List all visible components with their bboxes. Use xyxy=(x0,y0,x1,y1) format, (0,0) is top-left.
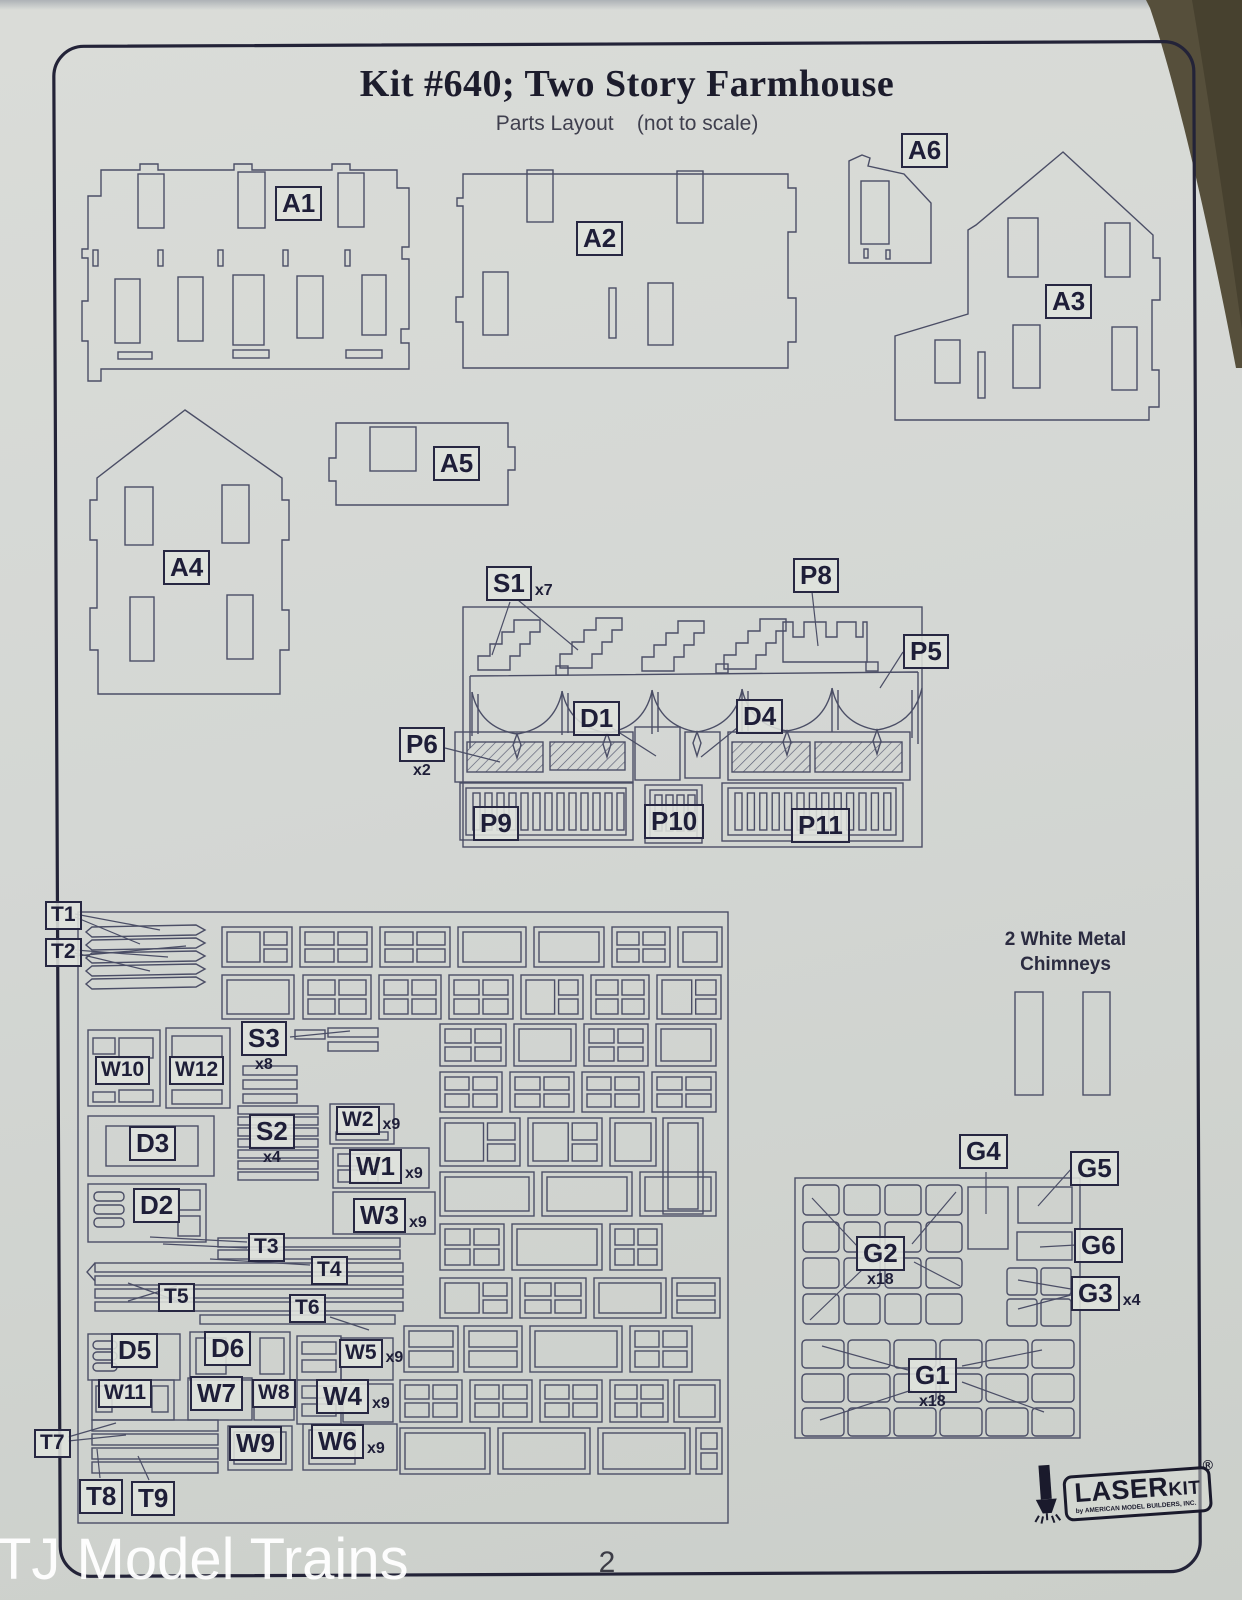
part-label-text: W10 xyxy=(95,1056,150,1085)
part-label-text: P6 xyxy=(399,727,445,762)
part-label-t1: T1 xyxy=(45,901,82,930)
laserkit-logo-box: LASERKIT by AMERICAN MODEL BUILDERS, INC… xyxy=(1062,1466,1213,1522)
part-quantity: x2 xyxy=(413,762,431,781)
part-label-text: W12 xyxy=(169,1056,224,1085)
part-label-text: G3 xyxy=(1071,1276,1120,1311)
part-label-text: W1 xyxy=(349,1149,402,1184)
part-quantity: x18 xyxy=(919,1393,946,1412)
piece-a1 xyxy=(82,164,409,381)
part-label-text: G2 xyxy=(856,1236,905,1271)
scanned-instruction-page: Kit #640; Two Story Farmhouse Parts Layo… xyxy=(0,0,1242,1600)
part-label-s2: S2x4 xyxy=(249,1114,295,1168)
part-label-g2: G2x18 xyxy=(856,1236,905,1290)
watermark: TJ Model Trains xyxy=(0,1526,409,1593)
part-label-text: W5 xyxy=(339,1339,383,1368)
part-label-text: W8 xyxy=(252,1379,296,1408)
part-label-t2: T2 xyxy=(45,938,82,967)
part-label-text: A6 xyxy=(901,133,948,168)
part-label-text: T8 xyxy=(79,1479,123,1514)
part-quantity: x9 xyxy=(405,1165,423,1184)
part-label-a6: A6 xyxy=(901,133,948,168)
part-label-text: W4 xyxy=(316,1379,369,1414)
part-label-w10: W10 xyxy=(95,1056,150,1085)
part-label-text: T3 xyxy=(248,1233,285,1262)
part-label-text: G6 xyxy=(1074,1228,1123,1263)
part-label-w2: W2x9 xyxy=(336,1106,400,1135)
part-label-a1: A1 xyxy=(275,186,322,221)
page-title: Kit #640; Two Story Farmhouse xyxy=(57,62,1197,106)
part-label-text: T1 xyxy=(45,901,82,930)
part-label-a3: A3 xyxy=(1045,284,1092,319)
part-label-text: P11 xyxy=(791,808,850,843)
part-label-w1: W1x9 xyxy=(349,1149,423,1184)
part-label-p11: P11 xyxy=(791,808,850,843)
part-label-text: S3 xyxy=(241,1021,287,1056)
part-label-text: P8 xyxy=(793,558,839,593)
part-label-text: T4 xyxy=(311,1256,348,1285)
piece-g5 xyxy=(1018,1187,1072,1223)
parts-outlines xyxy=(68,152,1160,1523)
part-label-s3: S3x8 xyxy=(241,1021,287,1075)
part-label-text: D4 xyxy=(736,699,783,734)
registered-mark: ® xyxy=(1202,1456,1213,1473)
part-label-text: D5 xyxy=(111,1333,158,1368)
part-label-text: S1 xyxy=(486,566,532,601)
part-label-a4: A4 xyxy=(163,550,210,585)
part-label-text: W6 xyxy=(311,1424,364,1459)
chimneys-note: 2 White Metal Chimneys xyxy=(978,928,1153,977)
part-label-g4: G4 xyxy=(959,1134,1008,1169)
part-label-text: G1 xyxy=(908,1358,957,1393)
part-label-text: T7 xyxy=(34,1429,71,1458)
part-label-w7: W7 xyxy=(190,1376,243,1411)
part-label-p6: P6x2 xyxy=(399,727,445,781)
part-label-g6: G6 xyxy=(1074,1228,1123,1263)
part-quantity: x4 xyxy=(1123,1292,1141,1311)
piece-a6 xyxy=(849,155,931,263)
part-label-text: T2 xyxy=(45,938,82,967)
part-label-text: P10 xyxy=(644,804,704,839)
piece-t3-t6-strips xyxy=(87,1238,403,1324)
part-label-text: D2 xyxy=(133,1188,180,1223)
part-label-text: A3 xyxy=(1045,284,1092,319)
part-label-text: W7 xyxy=(190,1376,243,1411)
part-label-text: W11 xyxy=(98,1379,152,1408)
part-label-text: T6 xyxy=(289,1294,326,1323)
part-label-d1: D1 xyxy=(573,701,620,736)
piece-chimneys xyxy=(1015,992,1110,1095)
part-label-text: D1 xyxy=(573,701,620,736)
part-quantity: x9 xyxy=(367,1440,385,1459)
part-label-text: W9 xyxy=(229,1426,282,1461)
part-label-text: A2 xyxy=(576,221,623,256)
piece-t7-t9-strips xyxy=(92,1420,218,1473)
part-label-text: T9 xyxy=(131,1481,175,1516)
part-label-text: W2 xyxy=(336,1106,380,1135)
part-label-d2: D2 xyxy=(133,1188,180,1223)
piece-a5 xyxy=(329,423,515,505)
piece-g4 xyxy=(968,1187,1008,1249)
piece-d1-opening xyxy=(635,727,680,780)
part-label-w3: W3x9 xyxy=(353,1198,427,1233)
part-label-text: W3 xyxy=(353,1198,406,1233)
part-label-w4: W4x9 xyxy=(316,1379,390,1414)
part-label-text: P5 xyxy=(903,634,949,669)
part-quantity: x9 xyxy=(383,1116,401,1135)
part-quantity: x9 xyxy=(409,1214,427,1233)
part-quantity: x18 xyxy=(867,1271,894,1290)
part-label-t9: T9 xyxy=(131,1481,175,1516)
part-label-g5: G5 xyxy=(1070,1151,1119,1186)
laser-nozzle-icon xyxy=(1027,1462,1063,1528)
part-label-s1: S1x7 xyxy=(486,566,553,601)
part-label-p10: P10 xyxy=(644,804,704,839)
part-label-a2: A2 xyxy=(576,221,623,256)
part-label-text: D6 xyxy=(204,1331,251,1366)
page-subtitle: Parts Layout (not to scale) xyxy=(57,112,1197,136)
piece-d4-opening xyxy=(685,732,720,778)
part-label-text: T5 xyxy=(158,1283,195,1312)
part-label-w6: W6x9 xyxy=(311,1424,385,1459)
part-label-t8: T8 xyxy=(79,1479,123,1514)
part-label-d3: D3 xyxy=(129,1126,176,1161)
part-label-text: G5 xyxy=(1070,1151,1119,1186)
laserkit-logo: LASERKIT by AMERICAN MODEL BUILDERS, INC… xyxy=(1025,1446,1216,1554)
piece-a3 xyxy=(895,152,1160,420)
logo-brand-sub: KIT xyxy=(1168,1477,1201,1500)
part-label-w8: W8 xyxy=(252,1379,296,1408)
part-label-w5: W5x9 xyxy=(339,1339,403,1368)
piece-a2 xyxy=(456,170,796,368)
part-quantity: x7 xyxy=(535,582,553,601)
part-label-text: P9 xyxy=(473,806,519,841)
part-label-p8: P8 xyxy=(793,558,839,593)
part-quantity: x9 xyxy=(372,1395,390,1414)
part-quantity: x8 xyxy=(255,1056,273,1075)
part-label-t6: T6 xyxy=(289,1294,326,1323)
part-label-text: S2 xyxy=(249,1114,295,1149)
part-label-d6: D6 xyxy=(204,1331,251,1366)
part-label-p5: P5 xyxy=(903,634,949,669)
part-label-text: A1 xyxy=(275,186,322,221)
part-label-a5: A5 xyxy=(433,446,480,481)
part-quantity: x9 xyxy=(386,1349,404,1368)
part-label-w11: W11 xyxy=(98,1379,152,1408)
part-label-w9: W9 xyxy=(229,1426,282,1461)
part-label-t5: T5 xyxy=(158,1283,195,1312)
part-label-w12: W12 xyxy=(169,1056,224,1085)
part-label-g3: G3x4 xyxy=(1071,1276,1140,1311)
part-quantity: x4 xyxy=(263,1149,281,1168)
part-label-t4: T4 xyxy=(311,1256,348,1285)
part-label-text: D3 xyxy=(129,1126,176,1161)
part-label-t7: T7 xyxy=(34,1429,71,1458)
part-label-p9: P9 xyxy=(473,806,519,841)
piece-p8 xyxy=(783,622,867,662)
part-label-text: G4 xyxy=(959,1134,1008,1169)
piece-p6-panels xyxy=(455,727,910,782)
part-label-d4: D4 xyxy=(736,699,783,734)
part-label-d5: D5 xyxy=(111,1333,158,1368)
part-label-text: A5 xyxy=(433,446,480,481)
part-label-text: A4 xyxy=(163,550,210,585)
part-label-g1: G1x18 xyxy=(908,1358,957,1412)
part-label-t3: T3 xyxy=(248,1233,285,1262)
